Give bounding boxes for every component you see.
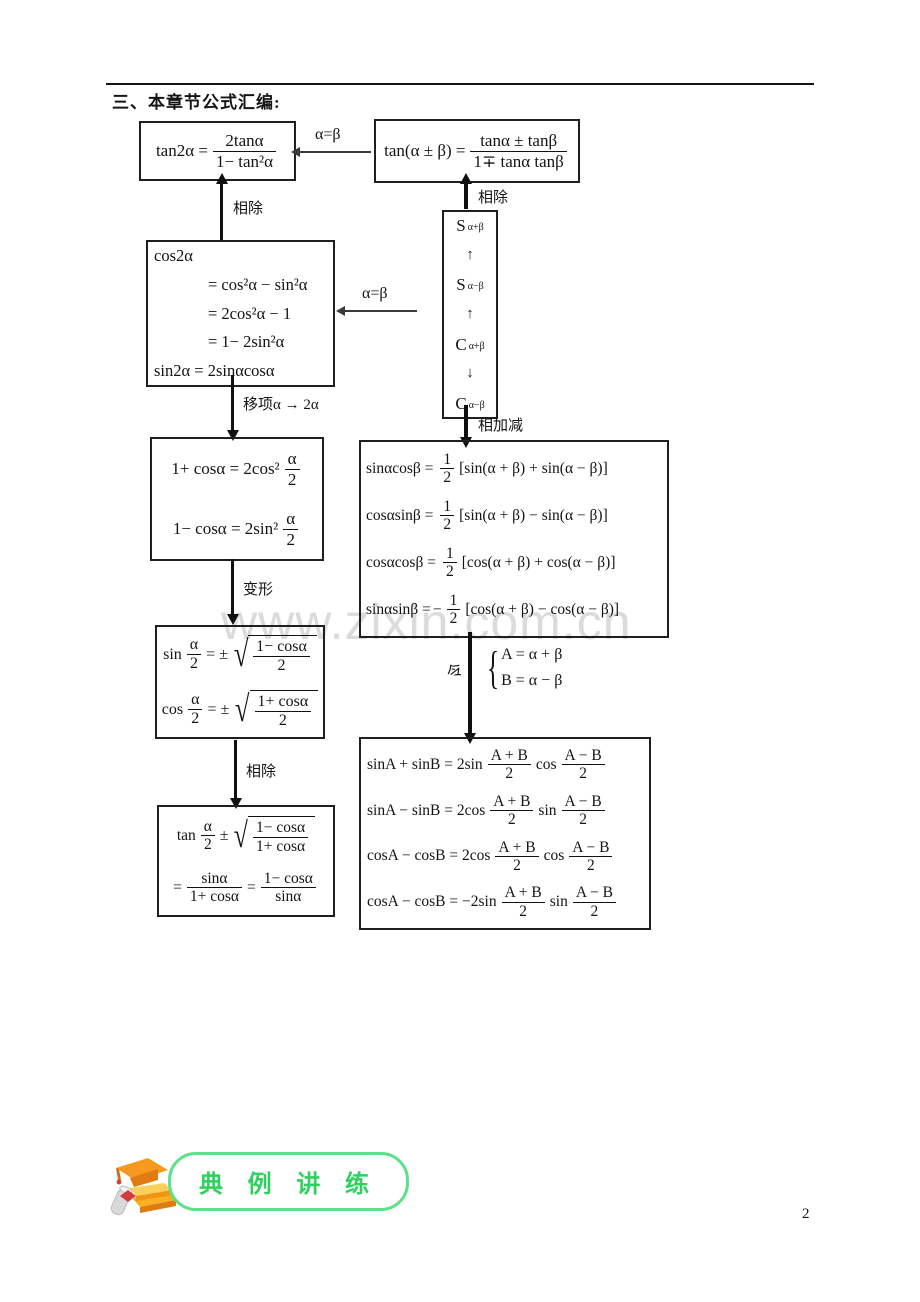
fraction-numerator: 1+ cosα [255, 693, 312, 712]
formula-lhs: cosA − cosB = −2sin [367, 893, 497, 911]
fraction-numerator: 1− cosα [261, 870, 316, 888]
connector-label-alpha-eq-beta: α=β [315, 126, 341, 144]
fraction-denominator: 1− tan²α [213, 152, 276, 171]
fraction: 1 2 [440, 451, 454, 487]
fraction-numerator: tanα ± tanβ [470, 131, 566, 151]
down-arrow [468, 632, 472, 734]
fraction-numerator: α [283, 509, 298, 529]
formula-row: sinA + sinB = 2sin A + B 2 cos A − B 2 [367, 747, 643, 783]
fraction-numerator: A + B [502, 884, 545, 902]
connector-label-transform: 变形 [243, 578, 273, 599]
up-arrow [464, 183, 468, 209]
fraction-denominator: 2 [253, 657, 310, 675]
sc-letter: C [455, 336, 466, 353]
sc-item: C α−β [455, 395, 484, 412]
formula-rhs: [sin(α + β) + sin(α − β)] [459, 460, 608, 478]
fraction-numerator: α [285, 449, 300, 469]
formula-lhs: sinαcosβ = [366, 460, 433, 478]
down-arrow [464, 405, 468, 438]
fraction-numerator: A + B [495, 839, 538, 857]
formula-mid: sin [550, 893, 568, 911]
formula-fn: tan [177, 827, 196, 845]
formula-row: = sinα 1+ cosα = 1− cosα sinα [163, 870, 329, 906]
fraction: A + B 2 [490, 793, 533, 829]
fraction-denominator: 2 [285, 470, 300, 489]
fraction: 2tanα 1− tan²α [213, 131, 276, 170]
section-title: 三、本章节公式汇编: [112, 88, 281, 113]
fraction-denominator: 2 [255, 712, 312, 730]
formula-line: cos2α [152, 246, 329, 266]
formula-box-sum-to-product: sinA + sinB = 2sin A + B 2 cos A − B 2 s… [359, 737, 651, 930]
formula-row: sin α 2 = ± 1− cosα 2 [161, 635, 319, 675]
formula-box-product-to-sum: sinαcosβ = 1 2 [sin(α + β) + sin(α − β)]… [359, 440, 669, 638]
formula-box-tan-double-angle: tan2α = 2tanα 1− tan²α [139, 121, 296, 181]
formula-row: cos α 2 = ± 1+ cosα 2 [161, 690, 319, 730]
formula-row: 1+ cosα = 2cos² α 2 [171, 449, 302, 488]
left-arrow [300, 151, 371, 153]
connector-label-divide: 相除 [246, 760, 276, 781]
fraction-denominator: 2 [502, 903, 545, 920]
fraction: A − B 2 [573, 884, 616, 920]
fraction-numerator: 1 [440, 451, 454, 469]
down-arrow [231, 559, 234, 615]
top-rule [106, 83, 814, 85]
formula-row: sinαcosβ = 1 2 [sin(α + β) + sin(α − β)] [366, 451, 662, 487]
equals-sign: = [247, 879, 256, 897]
sc-subscript: α−β [469, 401, 485, 412]
substitution-system: { A = α + β B = α − β [482, 642, 562, 693]
sc-item: S α+β [456, 217, 483, 234]
formula-fn: cos [162, 701, 183, 719]
sc-subscript: α+β [469, 342, 485, 353]
fraction: A − B 2 [562, 793, 605, 829]
fraction-numerator: α [188, 691, 202, 710]
fraction-denominator: 2 [447, 610, 461, 627]
connector-label-divide: 相除 [478, 186, 508, 207]
down-arrow-glyph: ↓ [466, 366, 474, 381]
sc-item: S α−β [456, 276, 483, 293]
fraction-numerator: 2tanα [213, 131, 276, 151]
fraction-numerator: α [187, 636, 201, 655]
fraction: 1 2 [447, 592, 461, 628]
connector-label-divide: 相除 [233, 197, 263, 218]
fraction-denominator: 2 [188, 710, 202, 728]
fraction-numerator: A − B [573, 884, 616, 902]
fraction-denominator: 2 [440, 516, 454, 533]
formula-lhs: cosαsinβ = [366, 507, 433, 525]
formula-row: cosαsinβ = 1 2 [sin(α + β) − sin(α − β)] [366, 498, 662, 534]
fraction-numerator: A + B [488, 747, 531, 765]
fraction-numerator: A − B [569, 839, 612, 857]
square-root: 1+ cosα 2 [232, 690, 318, 730]
fraction-denominator: sinα [261, 888, 316, 905]
left-arrow [345, 310, 417, 312]
formula-rhs: [cos(α + β) + cos(α − β)] [462, 554, 616, 572]
formula-lhs: sinA − sinB = 2cos [367, 802, 485, 820]
fraction: 1 2 [440, 498, 454, 534]
substitution-line: B = α − β [501, 668, 562, 694]
formula-lhs: sinA + sinB = 2sin [367, 756, 483, 774]
formula-lhs: cosαcosβ = [366, 554, 436, 572]
formula-row: cosA − cosB = 2cos A + B 2 cos A − B 2 [367, 839, 643, 875]
connector-label-shift: 移项α → 2α [243, 393, 319, 414]
formula-box-cos-double-angle: cos2α = cos²α − sin²α = 2cos²α − 1 = 1− … [146, 240, 335, 387]
formula-mid: = ± [206, 646, 228, 664]
fraction-denominator: 2 [443, 563, 457, 580]
fraction: 1 2 [443, 545, 457, 581]
up-arrow [220, 183, 223, 240]
formula-lhs: tan(α ± β) = [384, 141, 465, 161]
sc-letter: S [456, 276, 465, 293]
document-page: 三、本章节公式汇编: tan2α = 2tanα 1− tan²α α=β ta… [0, 0, 920, 1302]
substitution-line: A = α + β [501, 642, 562, 668]
formula-rhs: [cos(α + β) − cos(α − β)] [465, 601, 619, 619]
fraction: α 2 [285, 449, 300, 488]
fraction: A + B 2 [488, 747, 531, 783]
sc-subscript: α−β [468, 282, 484, 293]
fraction-denominator: 1+ cosα [253, 838, 308, 855]
formula-sign: − [433, 601, 442, 619]
formula-row: sinA − sinB = 2cos A + B 2 sin A − B 2 [367, 793, 643, 829]
page-number: 2 [802, 1206, 810, 1223]
fraction-numerator: A + B [490, 793, 533, 811]
fraction-denominator: 2 [562, 765, 605, 782]
formula-row: cosA − cosB = −2sin A + B 2 sin A − B 2 [367, 884, 643, 920]
up-arrow-glyph: ↑ [466, 307, 474, 322]
formula-mid: sin [538, 802, 556, 820]
formula-mid: cos [536, 756, 557, 774]
connector-label-alpha-eq-beta: α=β [362, 285, 388, 303]
fraction-denominator: 2 [488, 765, 531, 782]
down-arrow [231, 375, 234, 431]
formula-rhs: [sin(α + β) − sin(α − β)] [459, 507, 608, 525]
fraction: A − B 2 [562, 747, 605, 783]
formula-row: 1− cosα = 2sin² α 2 [173, 509, 301, 548]
formula-row: tan α 2 ± 1− cosα 1+ cosα [163, 816, 329, 855]
formula-row: sinαsinβ = − 1 2 [cos(α + β) − cos(α − β… [366, 592, 662, 628]
formula-mid: cos [544, 847, 565, 865]
formula-line: = 1− 2sin²α [152, 332, 329, 352]
fraction: A − B 2 [569, 839, 612, 875]
fraction-numerator: 1 [443, 545, 457, 563]
fraction-denominator: 2 [573, 903, 616, 920]
fraction: tanα ± tanβ 1∓ tanα tanβ [470, 131, 566, 170]
formula-lhs: cosA − cosB = 2cos [367, 847, 490, 865]
formula-box-tan-sum-difference: tan(α ± β) = tanα ± tanβ 1∓ tanα tanβ [374, 119, 580, 183]
fraction: α 2 [201, 818, 215, 854]
formula-row: cosαcosβ = 1 2 [cos(α + β) + cos(α − β)] [366, 545, 662, 581]
fraction-numerator: 1− cosα [253, 819, 308, 837]
fraction: 1+ cosα 2 [255, 693, 312, 730]
formula-mid: = ± [207, 701, 229, 719]
formula-mid: ± [220, 827, 229, 845]
formula-line: = cos²α − sin²α [152, 275, 329, 295]
formula-box-half-angle: sin α 2 = ± 1− cosα 2 cos α 2 = ± [155, 625, 325, 739]
formula-lhs: tan2α = [156, 141, 208, 161]
fraction-denominator: 1∓ tanα tanβ [470, 152, 566, 171]
fraction-denominator: 2 [440, 469, 454, 486]
fraction-denominator: 2 [562, 811, 605, 828]
sc-subscript: α+β [468, 223, 484, 234]
fraction-numerator: 1 [440, 498, 454, 516]
fraction: α 2 [283, 509, 298, 548]
logo-label: 典 例 讲 练 [168, 1152, 409, 1211]
fraction: α 2 [187, 636, 201, 673]
fraction: A + B 2 [502, 884, 545, 920]
fraction: α 2 [188, 691, 202, 728]
fraction-denominator: 2 [283, 530, 298, 549]
square-root: 1− cosα 1+ cosα [231, 816, 315, 855]
connector-label-let: 令 [440, 656, 467, 685]
formula-lhs: sinαsinβ = [366, 601, 431, 619]
fraction-denominator: 2 [201, 836, 215, 853]
sc-letter: S [456, 217, 465, 234]
fraction: 1− cosα 1+ cosα [253, 819, 308, 855]
formula-box-sc-chain: S α+β ↑ S α−β ↑ C α+β ↓ C α−β [442, 210, 498, 419]
square-root: 1− cosα 2 [231, 635, 317, 675]
up-arrow-glyph: ↑ [466, 248, 474, 263]
fraction-denominator: 2 [495, 857, 538, 874]
fraction-numerator: α [201, 818, 215, 836]
formula-line: sin2α = 2sinαcosα [152, 361, 329, 381]
formula-lhs: 1− cosα = 2sin² [173, 519, 278, 539]
fraction: 1− cosα sinα [261, 870, 316, 906]
fraction: A + B 2 [495, 839, 538, 875]
formula-box-tan-half-angle: tan α 2 ± 1− cosα 1+ cosα = sinα 1+ cosα [157, 805, 335, 917]
formula-fn: sin [163, 646, 182, 664]
fraction-numerator: A − B [562, 747, 605, 765]
fraction-numerator: A − B [562, 793, 605, 811]
fraction-denominator: 2 [187, 655, 201, 673]
formula-line: = 2cos²α − 1 [152, 304, 329, 324]
connector-label-add-subtract: 相加减 [478, 414, 523, 435]
fraction-denominator: 1+ cosα [187, 888, 242, 905]
fraction-denominator: 2 [569, 857, 612, 874]
fraction-denominator: 2 [490, 811, 533, 828]
sc-item: C α+β [455, 336, 484, 353]
left-brace: { [487, 648, 499, 687]
fraction-numerator: sinα [187, 870, 242, 888]
formula-box-power-reduction: 1+ cosα = 2cos² α 2 1− cosα = 2sin² α 2 [150, 437, 324, 561]
fraction: 1− cosα 2 [253, 638, 310, 675]
section-logo: 典 例 讲 练 [106, 1140, 409, 1222]
formula-lhs: 1+ cosα = 2cos² [171, 459, 279, 479]
fraction-numerator: 1 [447, 592, 461, 610]
equals-sign: = [173, 879, 182, 897]
down-arrow [234, 740, 237, 799]
fraction-numerator: 1− cosα [253, 638, 310, 657]
fraction: sinα 1+ cosα [187, 870, 242, 906]
